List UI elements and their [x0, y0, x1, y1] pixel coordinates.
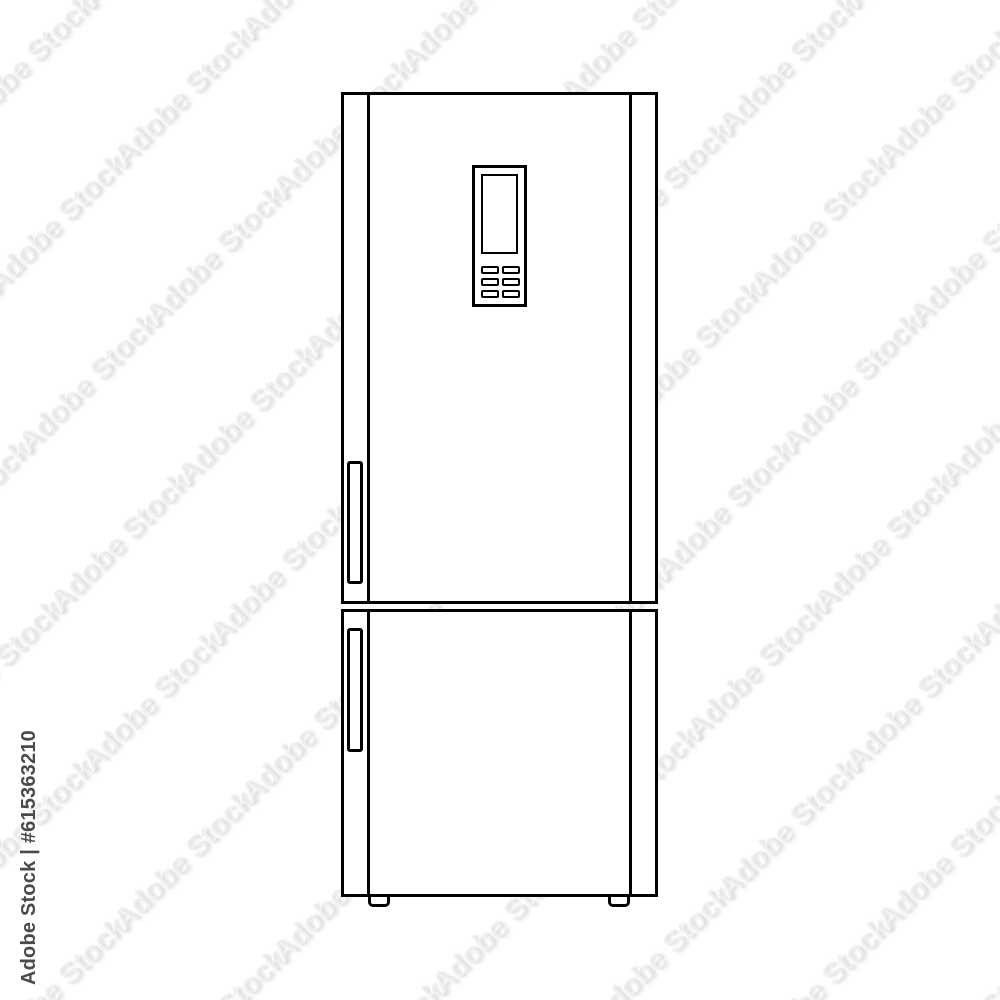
watermark-tile-text: Adobe Stock — [0, 148, 134, 302]
lower-door-handle — [347, 628, 363, 752]
watermark-tile-text: Adobe Stock — [108, 20, 262, 174]
fridge-upper-door — [341, 92, 658, 604]
control-panel-button — [481, 290, 499, 298]
watermark-tile-text: Adobe Stock — [680, 593, 834, 747]
watermark-tile-text: Adobe Stock — [648, 434, 802, 588]
watermark-credit-text: Adobe Stock | #615363210 — [18, 730, 41, 985]
watermark-tile-text: Adobe Stock — [744, 911, 898, 1000]
watermark-tile-text: Adobe Stock — [0, 593, 70, 747]
watermark-tile-text: Adobe Stock — [108, 784, 262, 938]
upper-right-frame-line — [629, 95, 632, 601]
fridge-lower-door — [341, 609, 658, 897]
control-panel-buttons — [475, 168, 524, 304]
watermark-tile-text: Adobe Stock — [903, 179, 1000, 333]
watermark-tile-text: Adobe Stock — [235, 0, 389, 47]
control-panel-button — [481, 266, 499, 274]
watermark-tile-text: Adobe Stock — [744, 148, 898, 302]
control-panel-button — [502, 290, 520, 298]
watermark-tile-text: Adobe Stock — [76, 625, 230, 779]
watermark-tile-text: Adobe Stock — [139, 943, 293, 1000]
watermark-tile-text: Adobe Stock — [76, 0, 230, 15]
watermark-tile-text: Adobe Stock — [0, 752, 102, 906]
upper-left-frame-line — [367, 95, 370, 601]
watermark-tile-text: Adobe Stock — [935, 339, 1000, 493]
watermark-tile-text: Adobe Stock — [871, 784, 1000, 938]
lower-right-frame-line — [629, 612, 632, 894]
watermark-tile-text: Adobe Stock — [871, 20, 1000, 174]
watermark-tile-text: Adobe Stock — [0, 275, 7, 429]
watermark-tile-text: Adobe Stock — [298, 975, 452, 1000]
watermark-tile-text: Adobe Stock — [967, 498, 1000, 652]
watermark-tile-text: Adobe Stock — [776, 307, 930, 461]
watermark-tile-text: Adobe Stock — [171, 339, 325, 493]
control-panel-button — [502, 278, 520, 286]
upper-door-handle — [347, 461, 363, 584]
watermark-tile-text: Adobe Stock — [712, 0, 866, 142]
watermark-tile-text: Adobe Stock — [12, 307, 166, 461]
watermark-tile-text: Adobe Stock — [808, 466, 962, 620]
control-panel — [472, 165, 527, 307]
watermark-tile-text: Adobe Stock — [394, 0, 548, 79]
watermark-tile-text: Adobe Stock — [712, 752, 866, 906]
watermark-tile-text: Adobe Stock — [903, 943, 1000, 1000]
control-panel-button — [481, 278, 499, 286]
watermark-tile-text: Adobe Stock — [44, 466, 198, 620]
control-panel-button — [502, 266, 520, 274]
stock-image-canvas: Adobe StockAdobe StockAdobe StockAdobe S… — [0, 0, 1000, 1000]
watermark-tile-text: Adobe Stock — [0, 434, 39, 588]
watermark-tile-text: Adobe Stock — [203, 498, 357, 652]
watermark-tile-text: Adobe Stock — [139, 179, 293, 333]
watermark-tile-text: Adobe Stock — [0, 0, 102, 142]
watermark-tile-text: Adobe Stock — [839, 0, 993, 15]
fridge-illustration — [341, 92, 658, 907]
watermark-tile-text: Adobe Stock — [839, 625, 993, 779]
lower-left-frame-line — [367, 612, 370, 894]
